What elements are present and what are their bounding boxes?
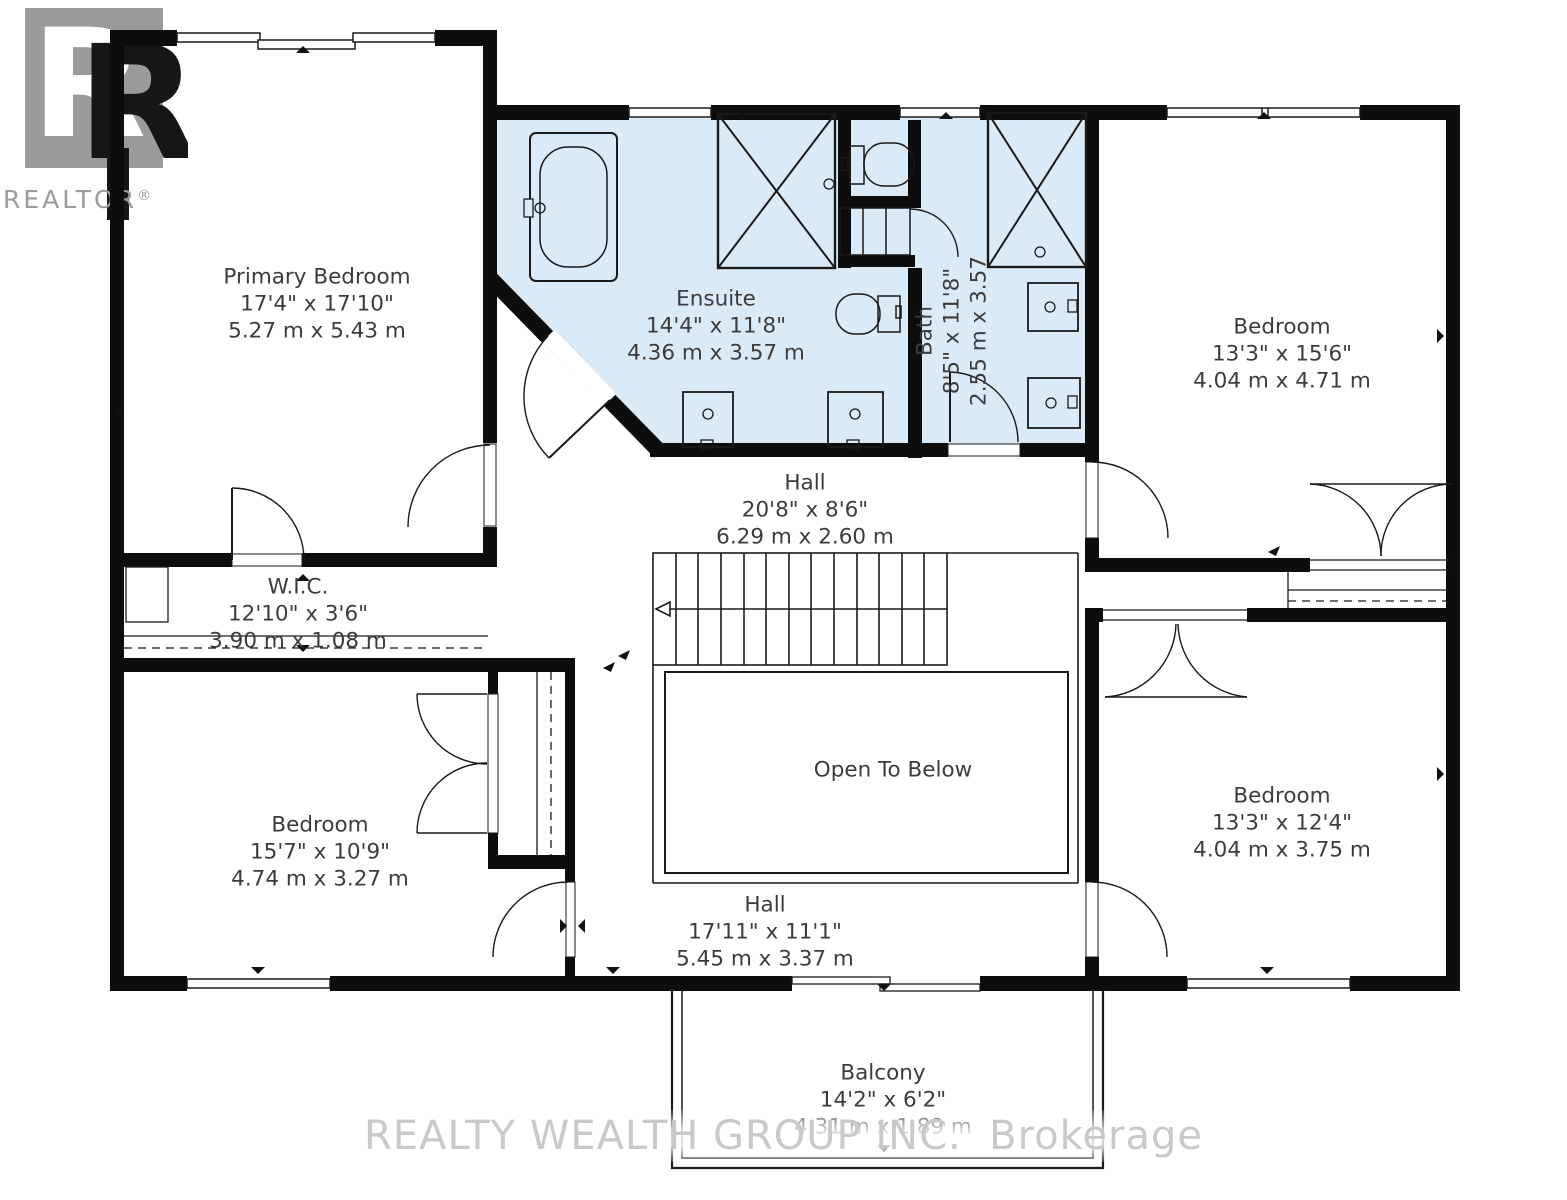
door-arc (1310, 484, 1381, 556)
door-arc (1105, 624, 1176, 697)
stairs (653, 553, 947, 665)
brokerage-watermark: REALTY WEALTH GROUP INC. Brokerage (0, 1110, 1567, 1162)
wic-shelf (126, 567, 168, 622)
window-primary-mid (258, 40, 355, 49)
floor-plan-page: R R REALTOR® (0, 0, 1567, 1200)
sw-closet-interior (537, 672, 551, 855)
door-arc (1092, 462, 1168, 538)
door-arc (493, 882, 568, 957)
window-bedroom-sw (187, 979, 330, 988)
door-arc (408, 445, 490, 527)
window-ensuite (629, 108, 711, 117)
floor-plan-drawing (0, 0, 1567, 1200)
door-arc (524, 336, 549, 458)
door-arc (232, 488, 304, 560)
door-arc (417, 763, 487, 833)
door-arc (1092, 882, 1167, 957)
stairwell-outline (653, 553, 1078, 883)
open-to-below-outline (665, 672, 1068, 873)
ne-closet-interior (1288, 572, 1446, 608)
door-arc (1178, 624, 1247, 697)
window-primary-left (177, 33, 260, 42)
door-arc (417, 694, 487, 764)
window-bedroom-se (1187, 979, 1350, 988)
stair-direction-arrow (656, 602, 670, 616)
door-leaf (549, 400, 610, 458)
door-arc (1381, 484, 1452, 556)
window-primary-right (353, 33, 435, 42)
window-bath (900, 108, 980, 117)
